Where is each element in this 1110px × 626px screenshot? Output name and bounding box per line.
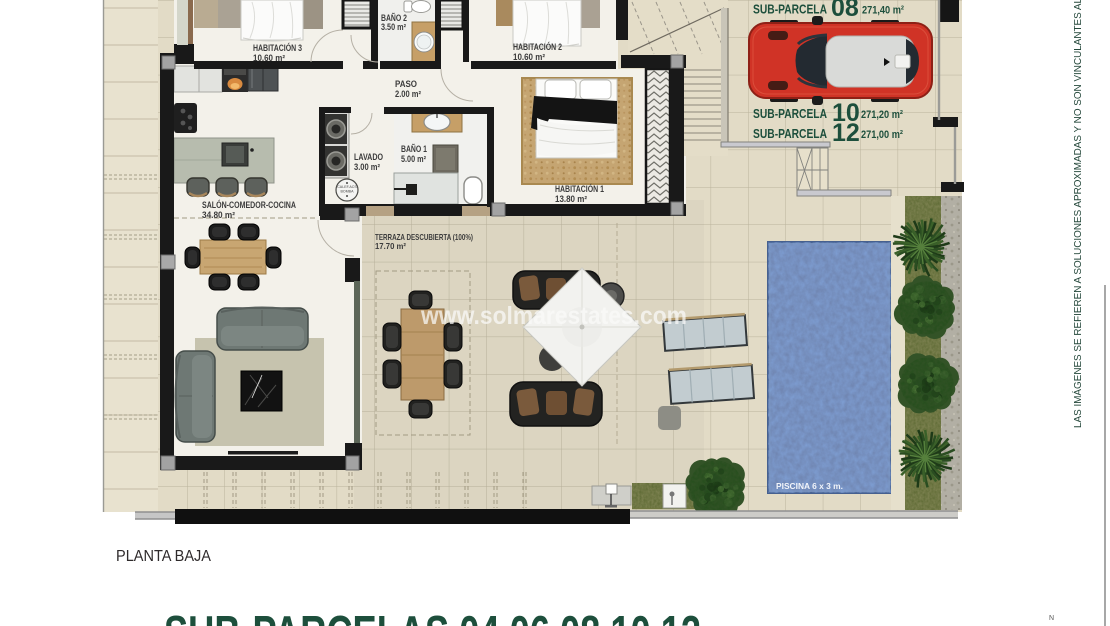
svg-text:HABITACIÓN 2: HABITACIÓN 2: [513, 41, 562, 52]
svg-text:2.00 m²: 2.00 m²: [395, 89, 421, 99]
svg-text:PLANTA BAJA: PLANTA BAJA: [116, 548, 211, 565]
svg-text:3.00 m²: 3.00 m²: [354, 162, 380, 172]
svg-text:271,00 m²: 271,00 m²: [861, 129, 903, 141]
svg-text:13.80 m²: 13.80 m²: [555, 194, 587, 204]
svg-text:SUB-PARCELA: SUB-PARCELA: [753, 127, 827, 141]
svg-text:PISCINA 6 x 3 m.: PISCINA 6 x 3 m.: [776, 481, 843, 491]
svg-text:LAVADO: LAVADO: [354, 152, 383, 162]
svg-text:08: 08: [831, 0, 859, 22]
svg-text:3.50 m²: 3.50 m²: [381, 22, 406, 32]
svg-text:SUB-PARCELAS 04 06 08 10 12: SUB-PARCELAS 04 06 08 10 12: [164, 607, 701, 626]
svg-text:SUB-PARCELA: SUB-PARCELA: [753, 107, 827, 121]
svg-text:CALEF.ACS: CALEF.ACS: [337, 185, 357, 189]
svg-text:271,40 m²: 271,40 m²: [862, 5, 904, 17]
svg-text:LAS IMÁGENES SE REFIEREN A SOL: LAS IMÁGENES SE REFIEREN A SOLUCIONES AP…: [1071, 0, 1084, 428]
svg-text:www.solmarestates.com: www.solmarestates.com: [420, 302, 687, 330]
svg-text:10.60 m²: 10.60 m²: [253, 53, 285, 63]
svg-text:N: N: [1049, 615, 1054, 622]
svg-text:BOMBA: BOMBA: [341, 190, 355, 194]
svg-text:HABITACIÓN 3: HABITACIÓN 3: [253, 42, 302, 53]
svg-text:17.70 m²: 17.70 m²: [375, 241, 406, 251]
svg-text:SUB-PARCELA: SUB-PARCELA: [753, 3, 827, 17]
svg-text:10.60 m²: 10.60 m²: [513, 52, 545, 62]
svg-text:271,20 m²: 271,20 m²: [861, 109, 903, 121]
svg-text:34.80 m²: 34.80 m²: [202, 210, 235, 220]
svg-text:PASO: PASO: [395, 79, 417, 89]
svg-text:BAÑO 1: BAÑO 1: [401, 144, 427, 154]
svg-text:SALÓN-COMEDOR-COCINA: SALÓN-COMEDOR-COCINA: [202, 199, 296, 210]
svg-text:HABITACIÓN 1: HABITACIÓN 1: [555, 183, 604, 194]
svg-text:12: 12: [832, 119, 860, 147]
svg-text:5.00 m²: 5.00 m²: [401, 154, 426, 164]
